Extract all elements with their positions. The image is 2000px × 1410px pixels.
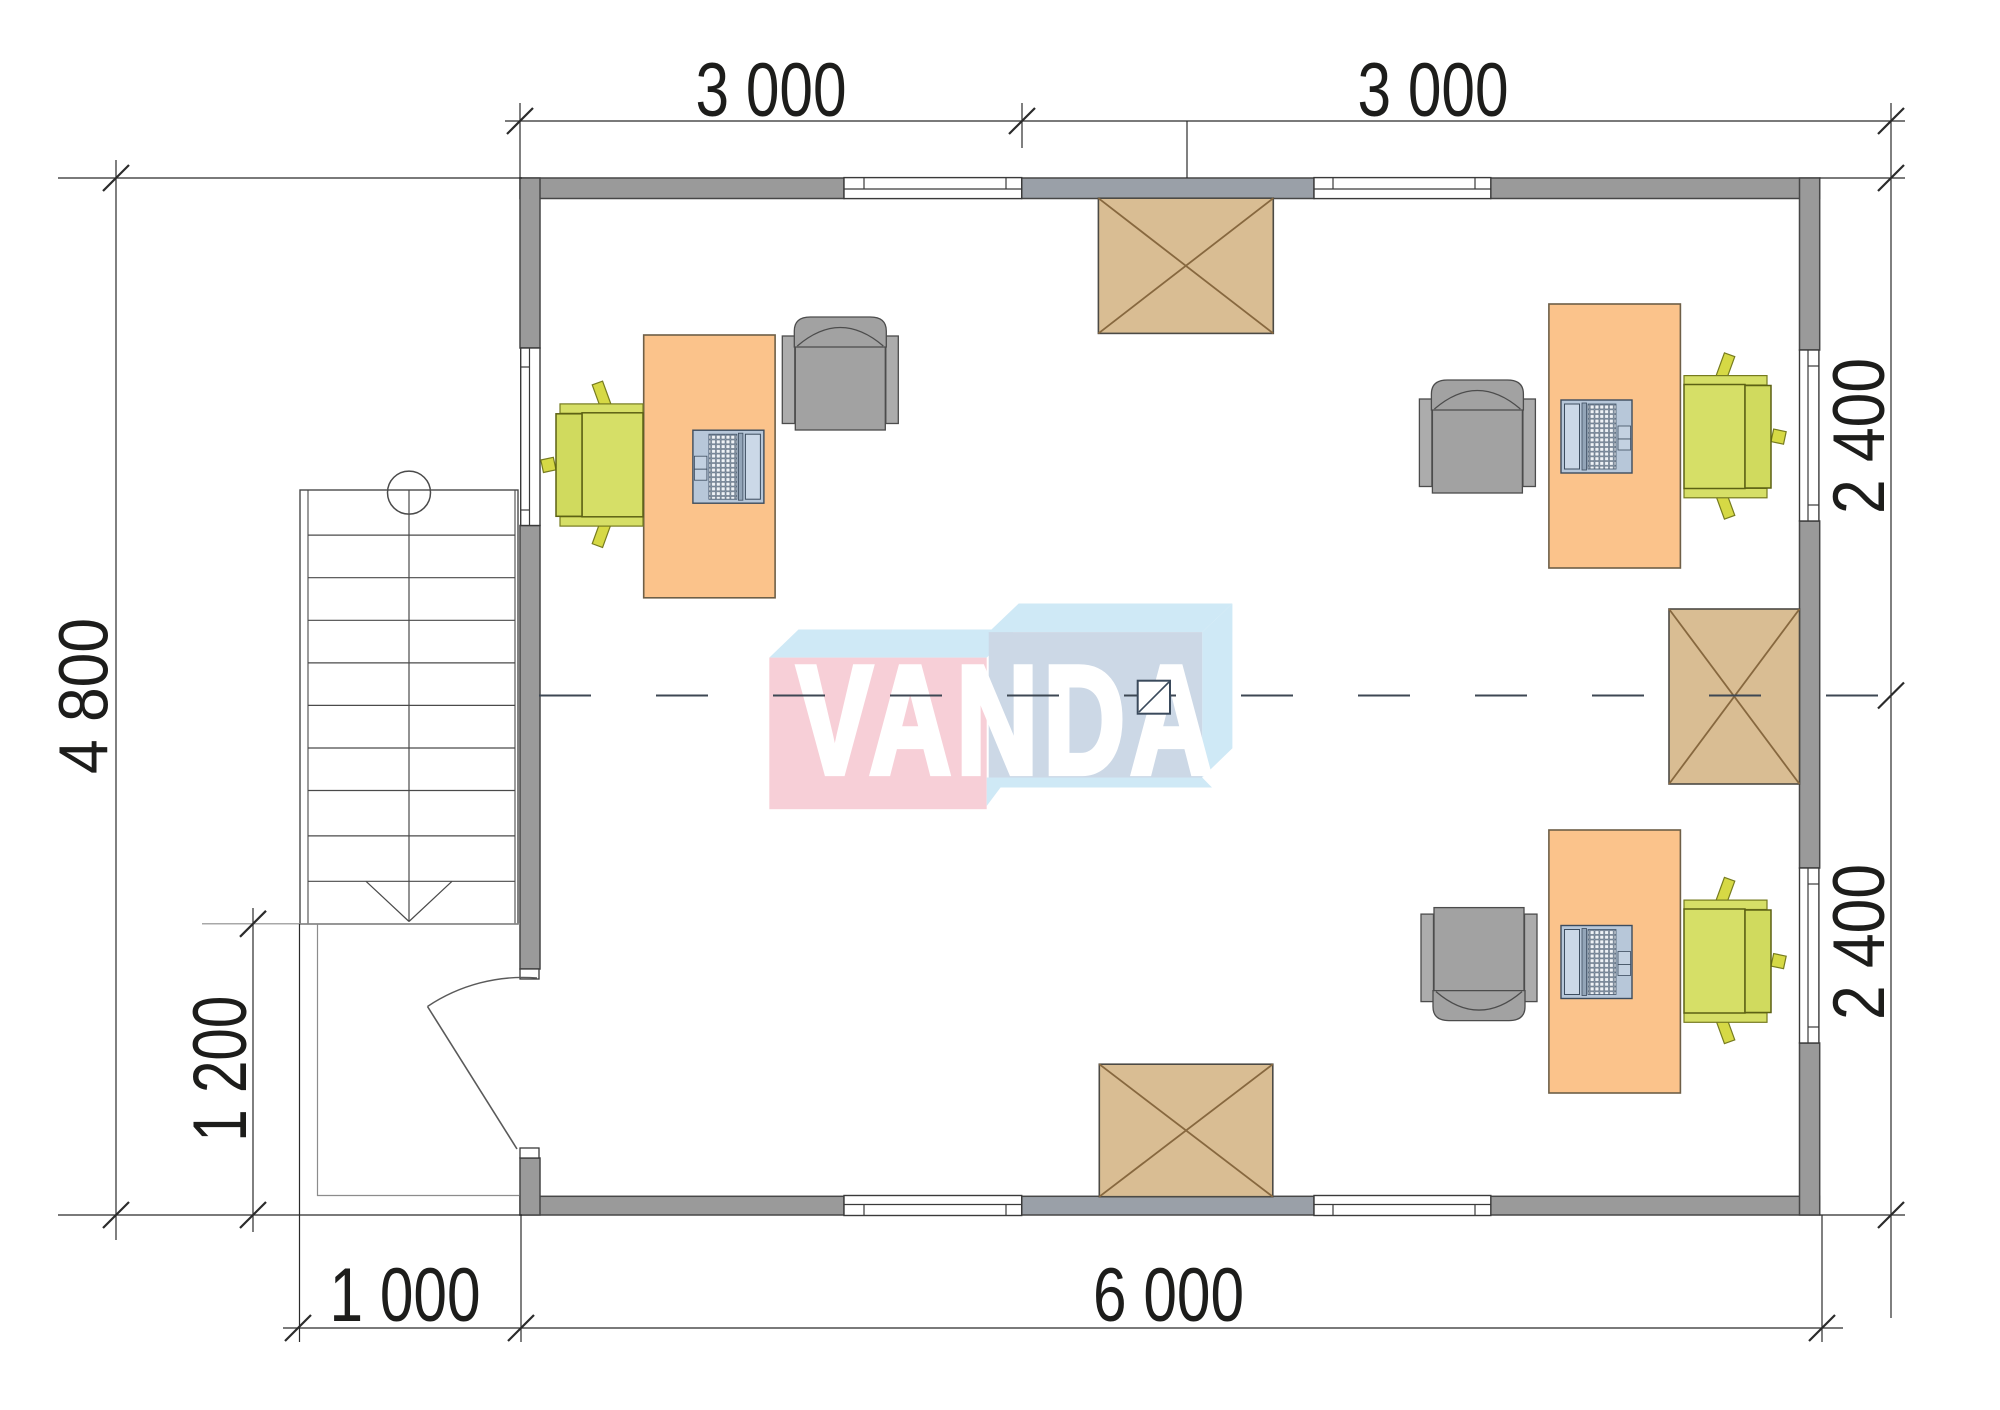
svg-text:4 800: 4 800: [44, 618, 122, 774]
svg-text:2 400: 2 400: [1819, 358, 1900, 514]
svg-text:VANDA: VANDA: [797, 634, 1212, 806]
svg-text:2 400: 2 400: [1819, 864, 1900, 1020]
svg-text:3 000: 3 000: [1358, 48, 1509, 133]
svg-text:1 000: 1 000: [330, 1253, 481, 1338]
svg-text:1 200: 1 200: [178, 996, 263, 1142]
svg-text:3 000: 3 000: [696, 48, 847, 133]
svg-text:6 000: 6 000: [1093, 1253, 1244, 1338]
